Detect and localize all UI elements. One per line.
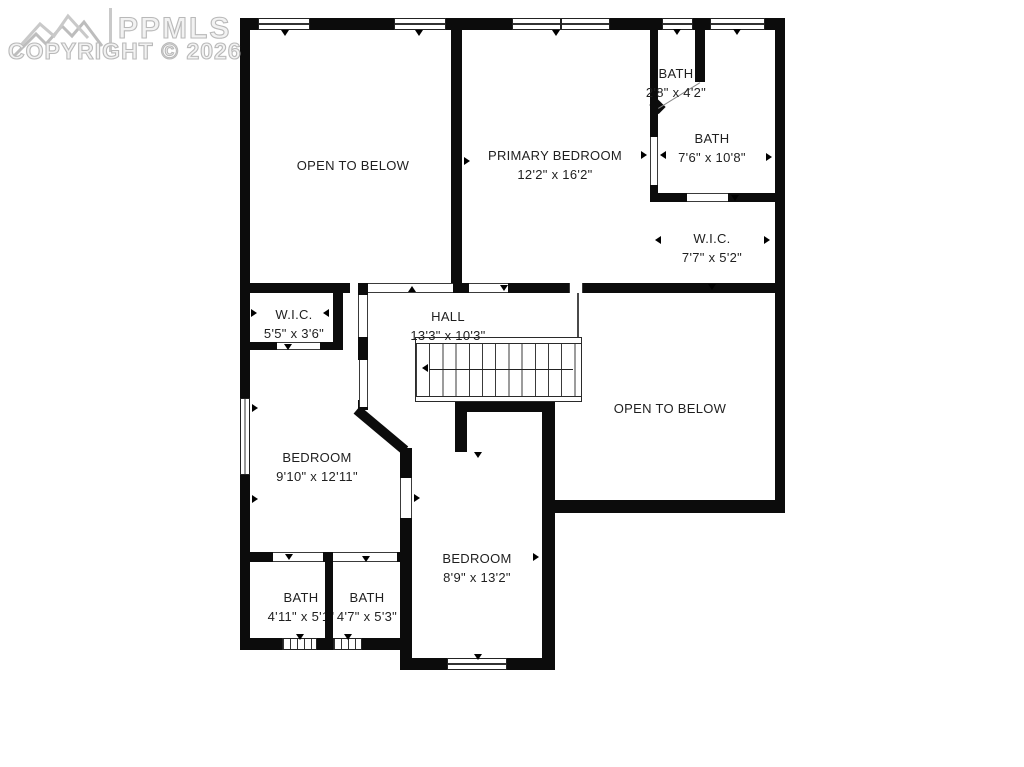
door-opening <box>400 478 412 518</box>
door-opening <box>273 552 323 562</box>
room-dims: 9'10" x 12'11" <box>237 468 397 487</box>
room-bath-right: BATH 4'7" x 5'3" <box>322 589 412 627</box>
wall <box>240 552 273 562</box>
window-marker <box>296 634 304 640</box>
wall <box>508 283 569 293</box>
room-name: BATH <box>322 589 412 608</box>
wall <box>775 18 785 513</box>
window-marker <box>474 654 482 660</box>
room-bedroom-left: BEDROOM 9'10" x 12'11" <box>237 449 397 487</box>
staircase <box>415 337 582 402</box>
window-marker <box>733 29 741 35</box>
window-marker <box>552 30 560 36</box>
room-open-to-below-upper: OPEN TO BELOW <box>273 157 433 176</box>
room-name: W.I.C. <box>652 230 772 249</box>
room-dims: 7'7" x 5'2" <box>652 249 772 268</box>
door-marker <box>414 494 420 502</box>
door-marker <box>285 554 293 560</box>
room-name: W.I.C. <box>238 306 350 325</box>
wall <box>362 638 412 650</box>
stair-direction-arrow <box>422 364 428 372</box>
wall <box>400 448 412 478</box>
room-wic-left: W.I.C. 5'5" x 3'6" <box>238 306 350 344</box>
room-dims: 2'8" x 4'2" <box>626 84 726 103</box>
room-name: BEDROOM <box>237 449 397 468</box>
room-bath-small: BATH 2'8" x 4'2" <box>626 65 726 103</box>
wall <box>240 638 282 650</box>
wall <box>507 658 555 670</box>
room-name: HALL <box>388 308 508 327</box>
room-name: BATH <box>626 65 726 84</box>
room-dims: 5'5" x 3'6" <box>238 325 350 344</box>
door-marker <box>408 286 416 292</box>
room-dims: 12'2" x 16'2" <box>465 166 645 185</box>
wall <box>358 337 368 360</box>
wall <box>542 500 785 513</box>
window <box>258 18 310 30</box>
stair-treads <box>416 343 581 397</box>
room-bedroom-lower: BEDROOM 8'9" x 13'2" <box>397 550 557 588</box>
wall <box>400 658 447 670</box>
window <box>394 18 446 30</box>
window-marker <box>344 634 352 640</box>
stair-railing <box>577 289 579 337</box>
wall <box>240 475 250 650</box>
room-hall: HALL 13'3" x 10'3" <box>388 308 508 346</box>
room-name: PRIMARY BEDROOM <box>465 147 645 166</box>
room-dims: 8'9" x 13'2" <box>397 569 557 588</box>
room-name: OPEN TO BELOW <box>273 157 433 176</box>
room-wic-right: W.I.C. 7'7" x 5'2" <box>652 230 772 268</box>
wall <box>542 398 555 670</box>
room-dims: 13'3" x 10'3" <box>388 327 508 346</box>
railing-gap <box>569 283 583 293</box>
door-marker <box>731 195 739 201</box>
room-dims: 4'7" x 5'3" <box>322 608 412 627</box>
door-marker <box>252 404 258 412</box>
door-marker <box>252 495 258 503</box>
wall <box>310 18 394 30</box>
door-opening <box>358 295 368 337</box>
window-marker <box>673 29 681 35</box>
window <box>561 18 610 30</box>
window <box>512 18 561 30</box>
room-open-to-below-lower: OPEN TO BELOW <box>590 400 750 419</box>
watermark-copyright: COPYRIGHT © 2026 <box>8 38 242 65</box>
door-marker <box>708 284 716 290</box>
wall <box>650 193 687 202</box>
floorplan: PPMLS COPYRIGHT © 2026 <box>0 0 1024 767</box>
wall <box>583 283 785 293</box>
wall <box>325 552 333 648</box>
window-marker <box>281 30 289 36</box>
room-bath-main: BATH 7'6" x 10'8" <box>652 130 772 168</box>
door-marker <box>284 344 292 350</box>
door-marker <box>362 556 370 562</box>
room-name: OPEN TO BELOW <box>590 400 750 419</box>
wall-diagonal <box>354 406 409 454</box>
room-name: BATH <box>652 130 772 149</box>
window-marker <box>415 30 423 36</box>
door-opening <box>359 360 368 407</box>
door-opening <box>687 193 728 202</box>
wall <box>455 412 467 452</box>
stair-direction-line <box>429 369 573 370</box>
wall <box>358 283 368 295</box>
room-primary-bedroom: PRIMARY BEDROOM 12'2" x 16'2" <box>465 147 645 185</box>
door-marker <box>474 452 482 458</box>
door-marker <box>500 285 508 291</box>
wall <box>451 28 462 283</box>
room-dims: 7'6" x 10'8" <box>652 149 772 168</box>
room-name: BEDROOM <box>397 550 557 569</box>
wall <box>453 283 469 293</box>
